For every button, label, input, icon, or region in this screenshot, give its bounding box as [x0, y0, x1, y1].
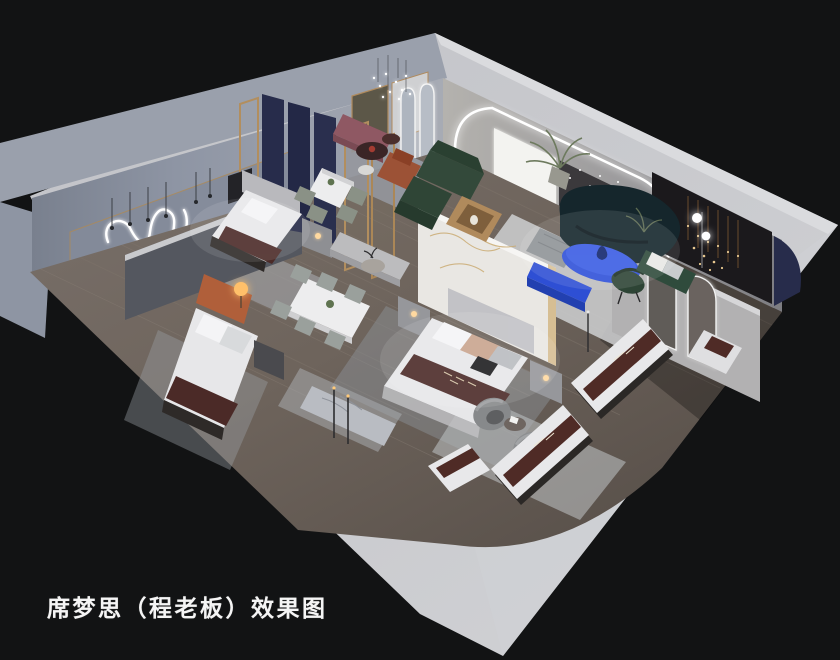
caption-text: 席梦思（程老板）效果图 — [47, 589, 328, 623]
floorplan-render — [0, 0, 840, 660]
render-canvas: 席梦思（程老板）效果图 — [0, 0, 840, 660]
